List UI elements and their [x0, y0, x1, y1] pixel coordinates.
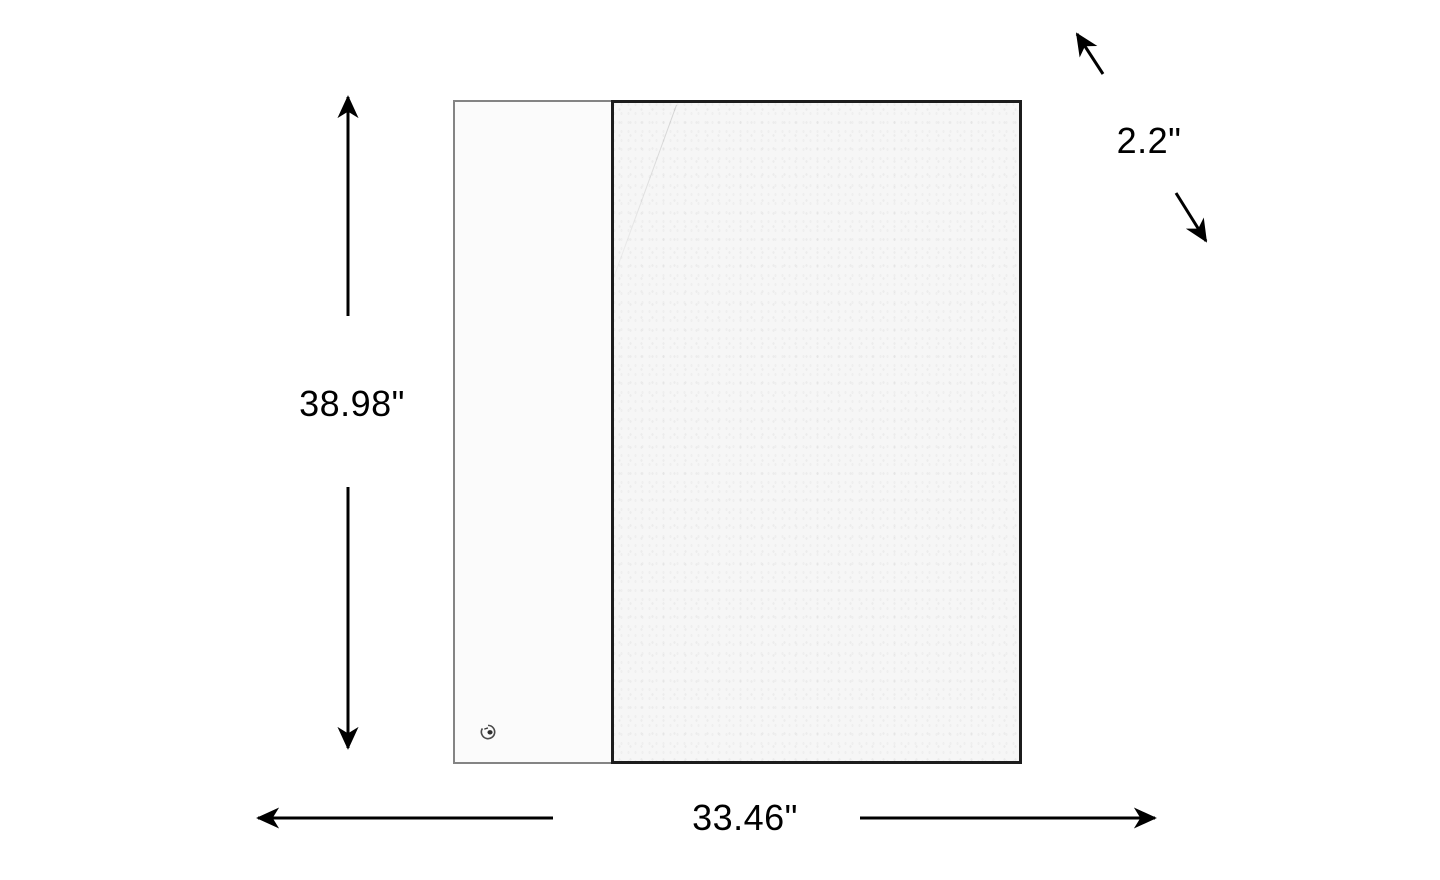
depth-arrow-down-right-icon [1176, 193, 1206, 241]
width-dimension-label: 33.46" [645, 798, 845, 838]
height-dimension-label: 38.98" [252, 384, 452, 424]
brand-logo-icon [479, 723, 498, 742]
cabinet-mirror-door [611, 100, 1022, 764]
mirror-reflection-highlight [611, 105, 677, 298]
dimension-diagram: 38.98" 33.46" 2.2" [0, 0, 1440, 880]
depth-arrow-up-left-icon [1077, 34, 1103, 74]
cabinet-side-panel [453, 100, 613, 764]
depth-dimension-label: 2.2" [1049, 121, 1249, 161]
